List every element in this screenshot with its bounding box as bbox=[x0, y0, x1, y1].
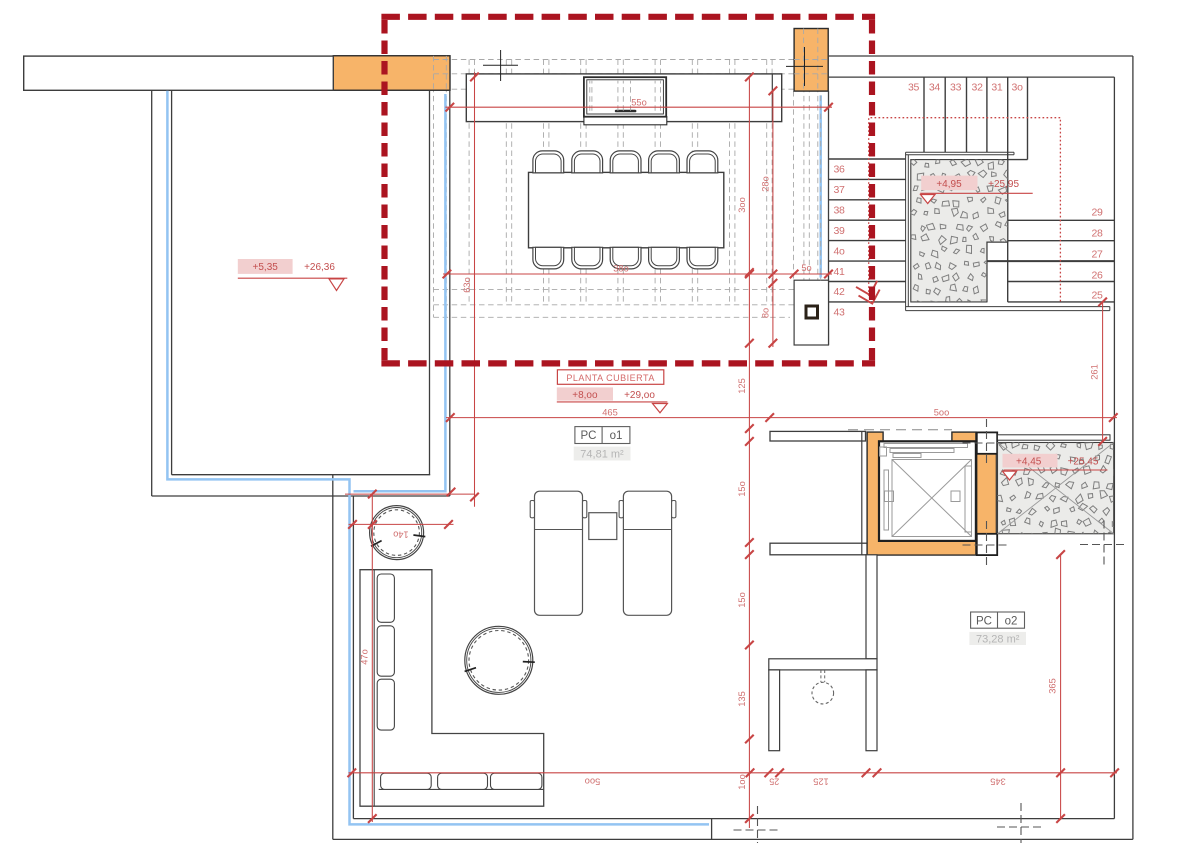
svg-text:34: 34 bbox=[929, 82, 941, 94]
svg-text:125: 125 bbox=[813, 776, 829, 786]
svg-text:3o: 3o bbox=[1012, 82, 1024, 94]
svg-text:+26,36: +26,36 bbox=[304, 262, 335, 273]
svg-text:15o: 15o bbox=[737, 481, 747, 497]
svg-text:74,81 m²: 74,81 m² bbox=[580, 448, 624, 460]
svg-text:261: 261 bbox=[1090, 364, 1100, 380]
svg-text:25: 25 bbox=[769, 776, 779, 786]
svg-text:PLANTA CUBIERTA: PLANTA CUBIERTA bbox=[566, 373, 655, 383]
svg-text:5oo: 5oo bbox=[934, 408, 950, 418]
svg-text:465: 465 bbox=[602, 408, 618, 418]
svg-text:33: 33 bbox=[950, 82, 962, 94]
svg-text:135: 135 bbox=[737, 691, 747, 707]
svg-text:3oo: 3oo bbox=[737, 197, 747, 213]
svg-text:+4,95: +4,95 bbox=[936, 179, 962, 190]
svg-text:41: 41 bbox=[833, 266, 845, 278]
svg-text:o2: o2 bbox=[1005, 615, 1018, 627]
svg-text:+25,95: +25,95 bbox=[988, 179, 1019, 190]
svg-text:+4,45: +4,45 bbox=[1016, 457, 1042, 468]
svg-text:345: 345 bbox=[990, 776, 1006, 786]
svg-text:28o: 28o bbox=[761, 176, 771, 192]
svg-text:37: 37 bbox=[833, 184, 845, 196]
svg-text:5o: 5o bbox=[801, 263, 811, 273]
svg-text:+5,35: +5,35 bbox=[253, 262, 279, 273]
svg-text:8o: 8o bbox=[761, 308, 771, 318]
svg-text:1oo: 1oo bbox=[737, 774, 747, 790]
svg-text:25: 25 bbox=[1091, 290, 1103, 302]
svg-text:73,28 m²: 73,28 m² bbox=[976, 633, 1020, 645]
svg-text:+8,oo: +8,oo bbox=[572, 390, 598, 401]
svg-text:63o: 63o bbox=[462, 277, 472, 293]
svg-text:39: 39 bbox=[833, 225, 845, 237]
svg-text:o1: o1 bbox=[610, 430, 623, 442]
svg-text:365: 365 bbox=[1048, 678, 1058, 694]
svg-text:36: 36 bbox=[833, 164, 845, 176]
svg-text:14o: 14o bbox=[393, 530, 409, 540]
svg-text:28: 28 bbox=[1091, 228, 1103, 240]
svg-text:PC: PC bbox=[581, 430, 597, 442]
svg-text:27: 27 bbox=[1091, 248, 1103, 260]
svg-text:42: 42 bbox=[833, 286, 845, 298]
svg-text:15o: 15o bbox=[737, 592, 747, 608]
svg-text:35: 35 bbox=[908, 82, 920, 94]
svg-text:4o: 4o bbox=[833, 245, 845, 257]
svg-text:+29,oo: +29,oo bbox=[624, 390, 655, 401]
svg-text:26: 26 bbox=[1091, 269, 1103, 281]
svg-text:38o: 38o bbox=[613, 263, 629, 273]
svg-text:PC: PC bbox=[976, 615, 992, 627]
svg-text:32: 32 bbox=[972, 82, 984, 94]
svg-text:29: 29 bbox=[1091, 207, 1103, 219]
svg-text:+25,45: +25,45 bbox=[1068, 457, 1099, 468]
svg-text:38: 38 bbox=[833, 205, 845, 217]
svg-text:125: 125 bbox=[737, 378, 747, 394]
svg-text:43: 43 bbox=[833, 307, 845, 319]
svg-text:47o: 47o bbox=[359, 649, 369, 665]
svg-text:5oo: 5oo bbox=[585, 776, 601, 786]
svg-text:55o: 55o bbox=[631, 98, 647, 108]
svg-text:31: 31 bbox=[991, 82, 1003, 94]
